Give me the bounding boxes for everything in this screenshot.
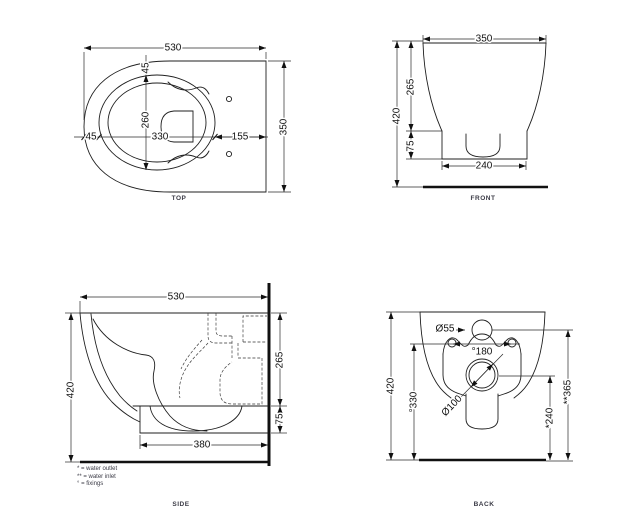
dim-top-bowl-width: 260 (141, 111, 152, 128)
dim-top-nose-offset: 45 (85, 132, 97, 143)
dim-top-seat-inset: 45 (141, 62, 152, 74)
dim-side-bowl-height: 265 (275, 351, 286, 368)
dim-top-overall-length: 530 (165, 43, 182, 54)
side-view-pan-outline (80, 283, 269, 466)
front-view-dimensions: 350 420 265 75 240 (392, 34, 546, 187)
fixing-hole-bottom (226, 151, 231, 156)
dim-top-rear-offset: 155 (232, 132, 249, 143)
dim-back-inlet-diameter: Ø55 (436, 324, 455, 335)
top-view-drawing: 530 350 45 330 155 45 260 (55, 18, 315, 210)
front-view-label: FRONT (453, 195, 513, 202)
top-view-label: TOP (149, 195, 209, 202)
back-view-drawing: 420 °330 °180 Ø55 Ø100 *240 **3 (375, 278, 610, 515)
dim-back-fixing-height: °330 (409, 391, 420, 412)
fixing-hole-right (508, 339, 516, 347)
dim-front-overall-width: 350 (476, 34, 493, 45)
top-view-dimensions: 530 350 45 330 155 45 260 (74, 43, 291, 192)
dim-back-overall-height: 420 (386, 377, 397, 394)
dim-top-overall-width: 350 (279, 118, 290, 135)
top-view-pan-outline (84, 61, 266, 192)
symbols-legend: * = water outlet ** = water inlet ° = fi… (77, 466, 117, 489)
fixing-hole-left (448, 339, 456, 347)
dim-side-skirt-height: 75 (275, 413, 286, 425)
back-view-label: BACK (454, 501, 514, 508)
dim-side-base-depth: 380 (194, 440, 211, 451)
technical-drawing-sheet: 530 350 45 330 155 45 260 TOP (0, 0, 627, 524)
dim-front-overall-height: 420 (392, 107, 403, 124)
water-inlet-hole (472, 320, 492, 340)
legend-water-outlet: * = water outlet (77, 466, 117, 474)
fixing-hole-top (226, 96, 231, 101)
legend-water-inlet: ** = water inlet (77, 474, 117, 482)
legend-fixings: ° = fixings (77, 481, 117, 489)
dim-front-base-width: 240 (476, 161, 493, 172)
dim-front-skirt-height: 75 (406, 140, 417, 152)
dim-side-overall-height: 420 (66, 381, 77, 398)
dim-top-seat-length: 330 (152, 132, 169, 143)
side-view-label: SIDE (151, 501, 211, 508)
dim-front-bowl-height: 265 (406, 78, 417, 95)
side-view-internal-channels (179, 313, 267, 404)
dim-back-fixing-spacing: °180 (472, 347, 493, 358)
dim-back-outlet-height: *240 (545, 407, 556, 428)
dim-back-inlet-height: **365 (563, 379, 574, 404)
side-view-dimensions: 530 420 265 75 380 (65, 292, 287, 462)
front-view-drawing: 350 420 265 75 240 (375, 18, 605, 210)
dim-side-overall-depth: 530 (168, 292, 185, 303)
